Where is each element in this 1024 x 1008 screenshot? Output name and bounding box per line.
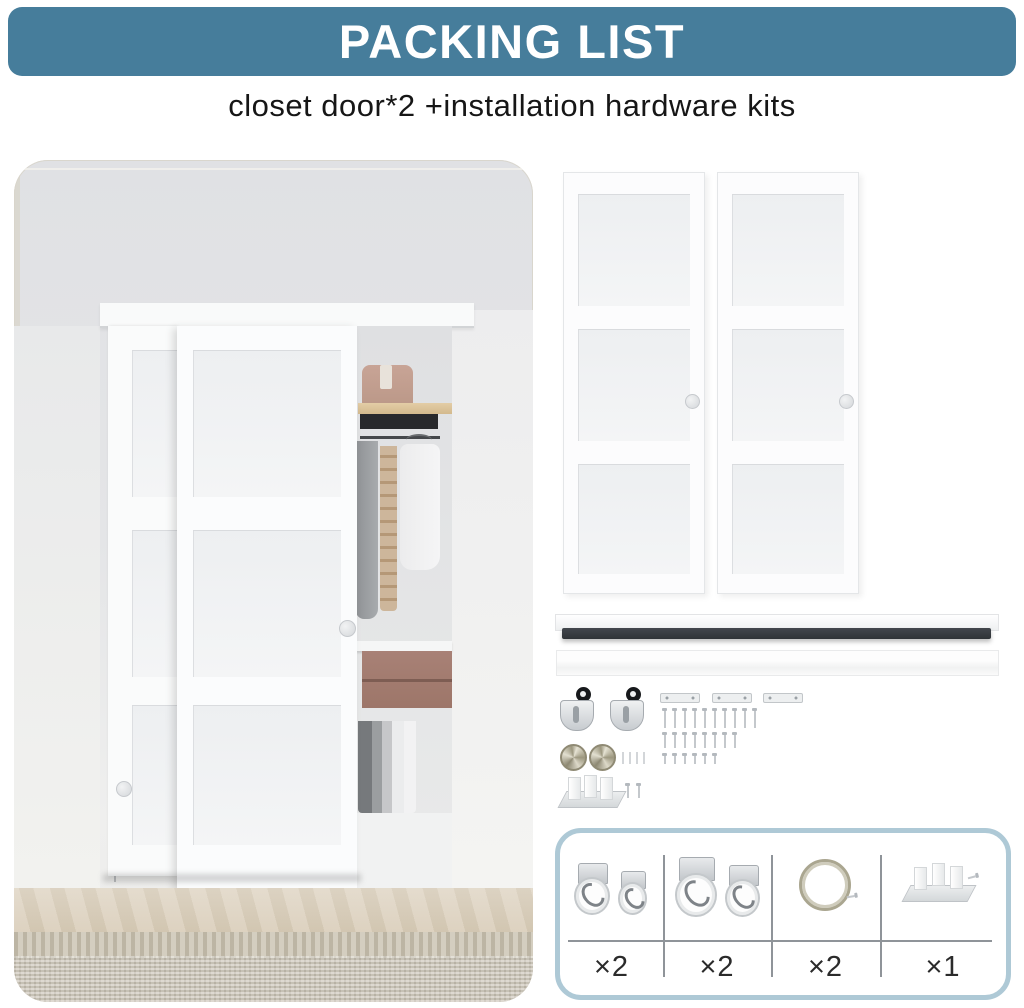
top-track-rail bbox=[562, 628, 991, 639]
frosted-lite bbox=[132, 530, 177, 677]
frosted-lite bbox=[732, 329, 844, 441]
rug-fringe bbox=[14, 932, 533, 958]
herringbone-floor bbox=[14, 888, 533, 932]
table-cell-roller-large: ×2 bbox=[663, 833, 771, 998]
wall-left bbox=[14, 326, 100, 888]
sliding-door-back bbox=[108, 326, 177, 876]
bottom-roller-icon bbox=[675, 857, 717, 917]
frosted-lite bbox=[193, 530, 341, 677]
frosted-lite bbox=[578, 329, 690, 441]
mounting-plate-icon bbox=[660, 693, 700, 703]
photo-top-highlight bbox=[20, 168, 525, 170]
wall-right bbox=[452, 310, 533, 888]
plaid-scarf bbox=[380, 446, 397, 611]
floor-guide-icon bbox=[902, 863, 982, 907]
top-roller-icon bbox=[610, 687, 644, 731]
pin-icon bbox=[629, 752, 631, 764]
door-pull-icon bbox=[839, 394, 854, 409]
bottom-roller-icon bbox=[618, 871, 647, 915]
header-banner: PACKING LIST bbox=[8, 7, 1016, 76]
interior-counter bbox=[356, 641, 452, 651]
frosted-lite bbox=[578, 194, 690, 306]
page-title: PACKING LIST bbox=[339, 14, 685, 69]
guide-plate-icon bbox=[901, 885, 976, 902]
subtitle: closet door*2 +installation hardware kit… bbox=[0, 88, 1024, 124]
packing-table: ×2 ×2 ×2 ×1 bbox=[555, 828, 1011, 1000]
door-panel-2 bbox=[717, 172, 859, 594]
white-blouse bbox=[400, 444, 440, 570]
frosted-lite bbox=[732, 194, 844, 306]
table-cell-pull: ×2 bbox=[771, 833, 880, 998]
hat-box bbox=[362, 365, 413, 406]
mounting-plate-icon bbox=[712, 693, 752, 703]
frosted-lite bbox=[132, 705, 177, 845]
rug-texture bbox=[14, 956, 533, 1002]
finger-pull-icon bbox=[589, 744, 616, 771]
finger-pull-icon bbox=[799, 859, 851, 911]
area-rug bbox=[14, 932, 533, 1002]
closet-interior bbox=[356, 326, 452, 888]
guide-block-icon bbox=[932, 863, 945, 886]
qty-label: ×1 bbox=[880, 951, 1006, 984]
hat-box-strap bbox=[380, 365, 392, 389]
guide-block-icon bbox=[568, 777, 581, 800]
gray-sweater bbox=[356, 441, 378, 619]
door-pull-icon bbox=[116, 781, 132, 797]
frosted-lite bbox=[193, 350, 341, 497]
door-shadow bbox=[103, 874, 361, 882]
guide-block-icon bbox=[914, 867, 927, 890]
bottom-roller-icon bbox=[725, 865, 760, 917]
qty-label: ×2 bbox=[771, 951, 880, 984]
frosted-lite bbox=[193, 705, 341, 845]
closet-lintel bbox=[100, 303, 474, 328]
door-panel-1 bbox=[563, 172, 705, 594]
guide-block-icon bbox=[584, 775, 597, 798]
finger-pull-icon bbox=[560, 744, 587, 771]
door-pull-icon bbox=[339, 620, 356, 637]
pin-icon bbox=[622, 752, 624, 764]
shelf-bracket bbox=[360, 414, 438, 429]
closet-photo bbox=[14, 160, 533, 1002]
table-cell-floor-guide: ×1 bbox=[880, 833, 1006, 998]
frosted-lite bbox=[132, 350, 177, 497]
mounting-plate-icon bbox=[763, 693, 803, 703]
hanging-pants bbox=[358, 721, 416, 813]
qty-label: ×2 bbox=[560, 951, 663, 984]
interior-floor bbox=[356, 813, 452, 888]
pin-icon bbox=[643, 752, 645, 764]
drawer-divider bbox=[362, 679, 452, 682]
bottom-roller-icon bbox=[574, 863, 610, 915]
wood-shelf bbox=[358, 403, 452, 414]
door-pull-icon bbox=[685, 394, 700, 409]
floor-guide-icon bbox=[560, 775, 626, 809]
drawer-unit bbox=[362, 651, 452, 708]
roller-bracket-icon bbox=[610, 700, 644, 731]
guide-block-icon bbox=[950, 866, 963, 889]
sliding-door-front bbox=[177, 326, 357, 888]
qty-label: ×2 bbox=[663, 951, 771, 984]
roller-bracket-icon bbox=[560, 700, 594, 731]
table-cell-roller-small: ×2 bbox=[560, 833, 663, 998]
frosted-lite bbox=[578, 464, 690, 574]
frosted-lite bbox=[732, 464, 844, 574]
top-roller-icon bbox=[560, 687, 594, 731]
pin-icon bbox=[636, 752, 638, 764]
guide-block-icon bbox=[600, 777, 613, 800]
bottom-track-rail bbox=[556, 650, 999, 676]
